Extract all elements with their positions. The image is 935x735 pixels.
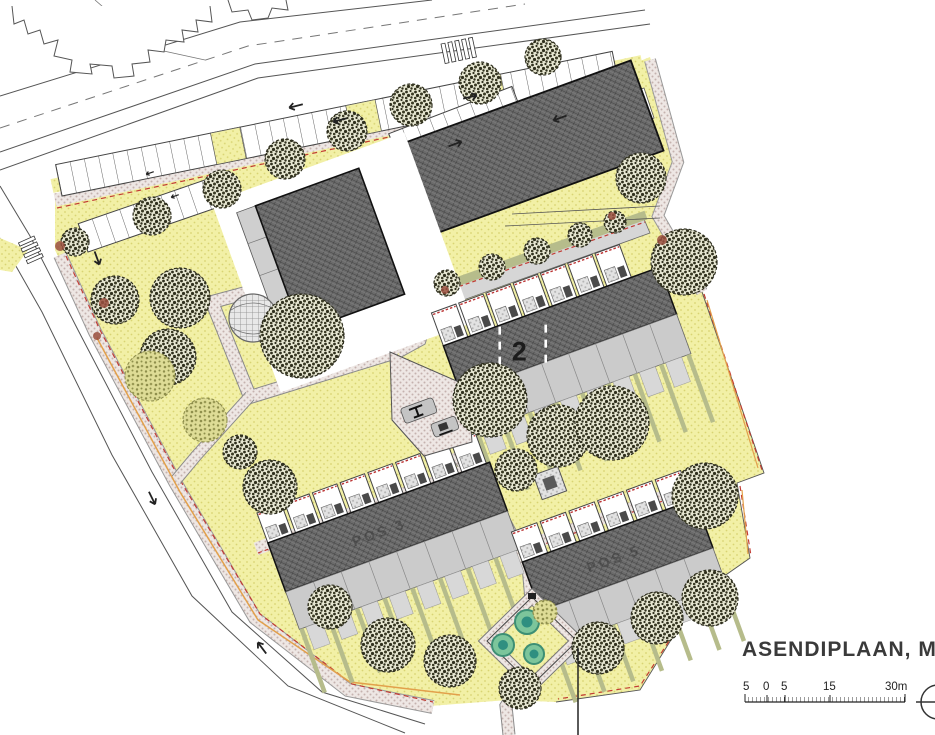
scale-label-2: 5 bbox=[781, 681, 787, 693]
drawing-title: ASENDIPLAAN, M1: bbox=[742, 638, 935, 661]
existing-building-outline bbox=[12, 0, 288, 78]
north-arrow-icon bbox=[916, 681, 935, 723]
building-2-number: 2 bbox=[512, 337, 527, 367]
site-plan-drawing: 2 bbox=[0, 0, 935, 735]
scale-bar: 5 0 5 15 30m bbox=[743, 681, 907, 702]
scale-label-1: 0 bbox=[763, 681, 769, 693]
crosswalk-left bbox=[18, 236, 43, 264]
scale-label-3: 15 bbox=[823, 681, 836, 693]
scale-label-4: 30m bbox=[885, 681, 907, 693]
scale-label-0: 5 bbox=[743, 681, 749, 693]
crosswalk-top bbox=[441, 37, 476, 63]
site-plan-canvas: 2 bbox=[0, 0, 935, 735]
